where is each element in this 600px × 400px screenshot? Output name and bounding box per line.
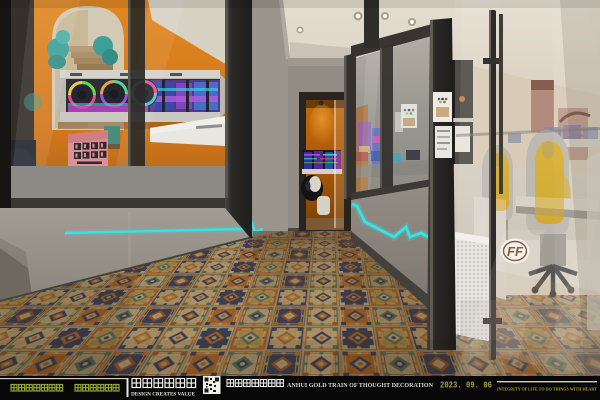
svg-text:DESIGN CREATES VALUE: DESIGN CREATES VALUE	[131, 392, 196, 398]
svg-text:2023. 09. 06: 2023. 09. 06	[440, 380, 492, 391]
svg-text:INTEGRITY OF LIFE TO DO THINGS: INTEGRITY OF LIFE TO DO THINGS WITH HEAR…	[497, 387, 597, 392]
svg-text:ANHUI GOLD TRAIN OF THOUGHT DE: ANHUI GOLD TRAIN OF THOUGHT DECORATION	[287, 382, 433, 389]
